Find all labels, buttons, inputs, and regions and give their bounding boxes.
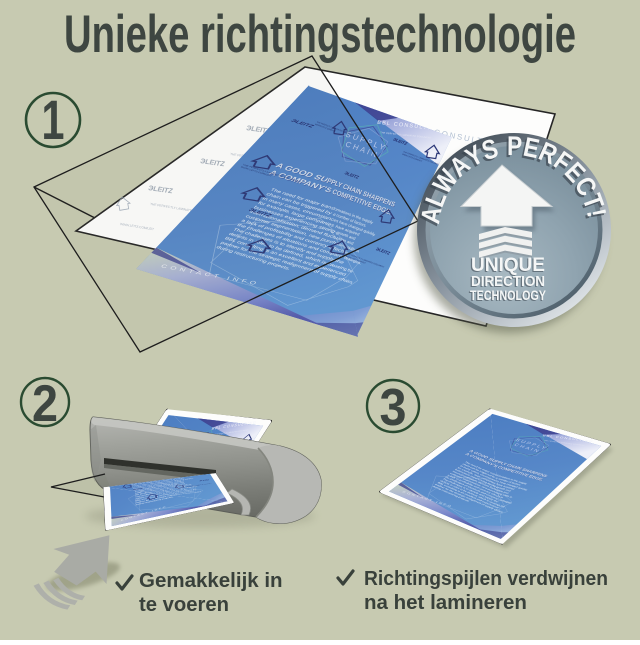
svg-text:P: P bbox=[507, 131, 522, 161]
svg-text:2: 2 bbox=[32, 375, 58, 433]
svg-text:Unieke richtingstechnologie: Unieke richtingstechnologie bbox=[64, 5, 576, 64]
svg-text:TECHNOLOGY: TECHNOLOGY bbox=[470, 288, 546, 303]
svg-text:na het lamineren: na het lamineren bbox=[364, 591, 527, 614]
svg-text:1: 1 bbox=[42, 88, 65, 151]
svg-text:te voeren: te voeren bbox=[139, 593, 229, 616]
svg-text:Gemakkelijk in: Gemakkelijk in bbox=[139, 569, 283, 592]
svg-text:3: 3 bbox=[380, 379, 407, 437]
svg-text:Richtingspijlen verdwijnen: Richtingspijlen verdwijnen bbox=[364, 567, 608, 590]
